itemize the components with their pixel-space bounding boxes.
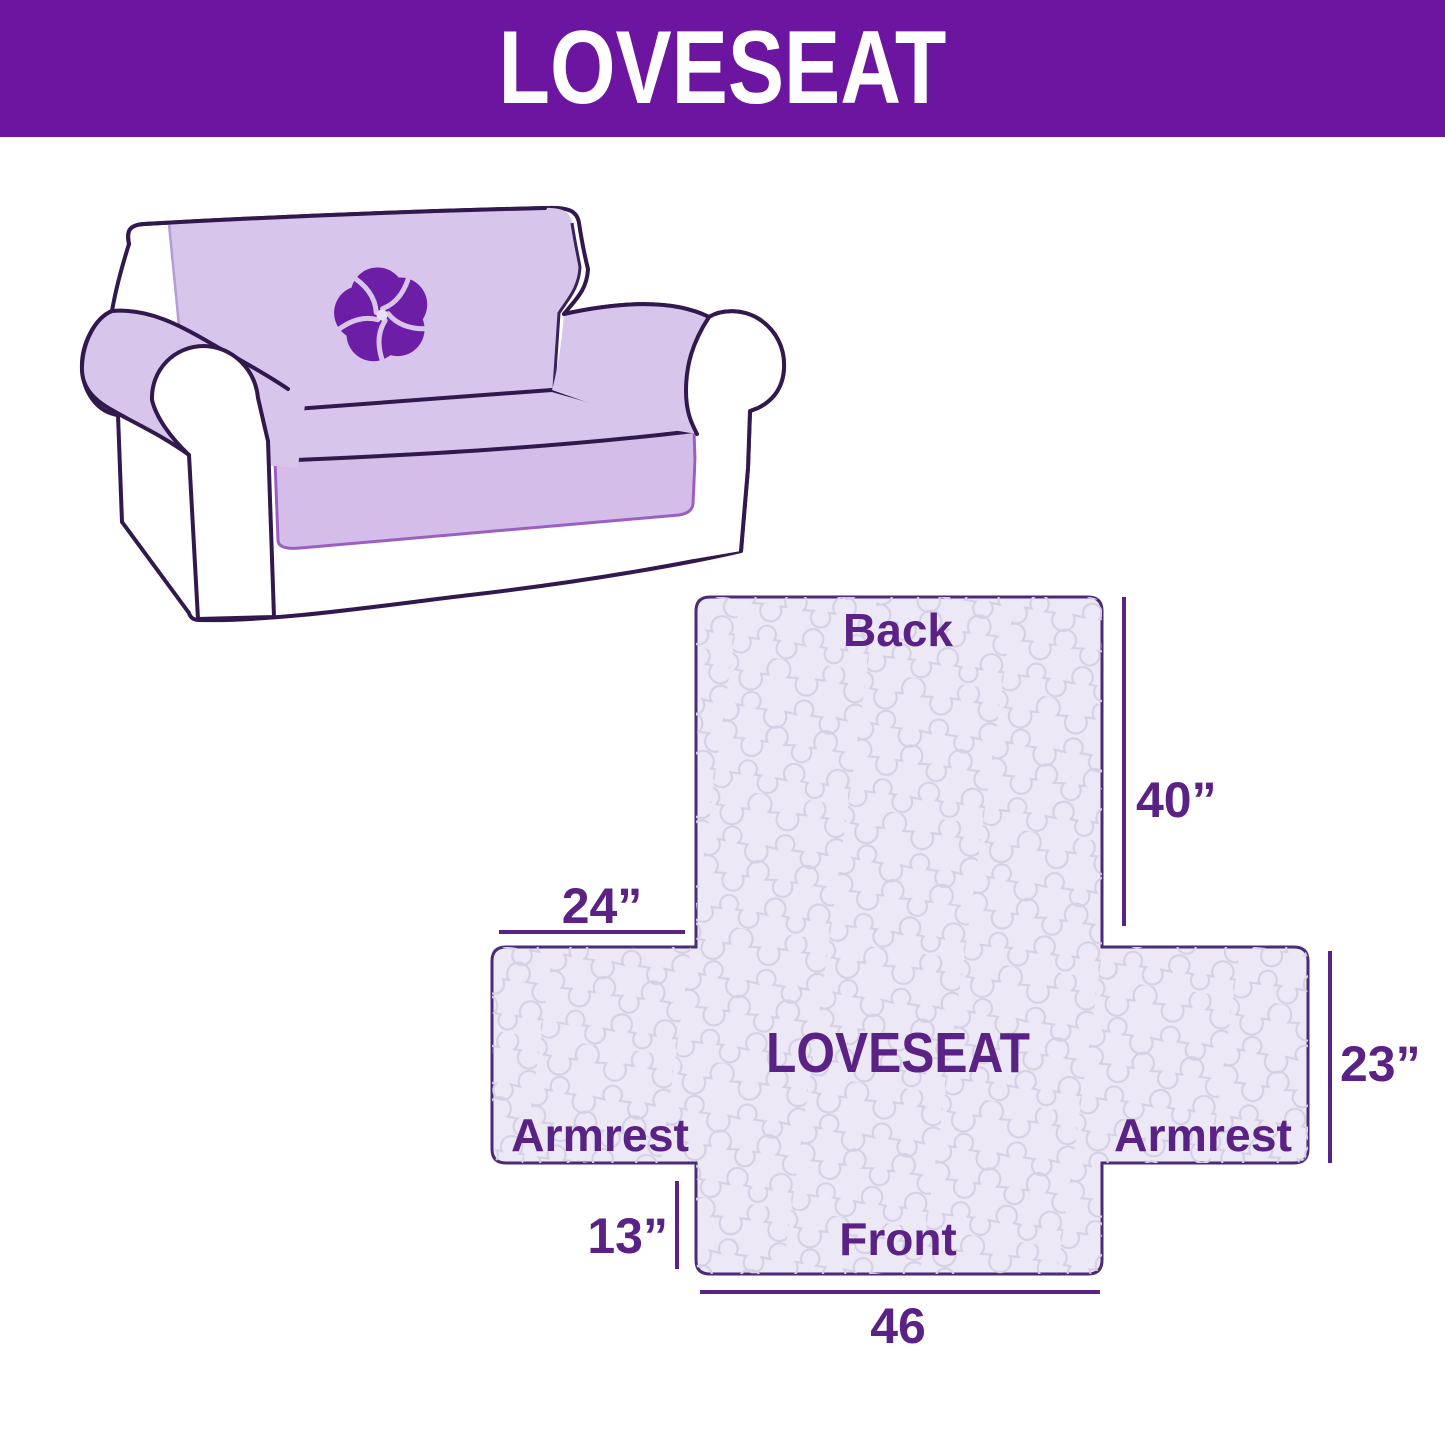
svg-text:Front: Front — [839, 1213, 957, 1265]
svg-text:Armrest: Armrest — [511, 1109, 689, 1161]
svg-text:LOVESEAT: LOVESEAT — [766, 1021, 1030, 1085]
svg-text:Armrest: Armrest — [1114, 1109, 1292, 1161]
svg-text:46: 46 — [870, 1298, 926, 1354]
svg-text:Back: Back — [843, 604, 953, 656]
svg-text:40”: 40” — [1136, 772, 1217, 828]
svg-text:13”: 13” — [587, 1208, 668, 1264]
svg-text:23”: 23” — [1340, 1036, 1421, 1092]
svg-text:24”: 24” — [562, 878, 643, 934]
